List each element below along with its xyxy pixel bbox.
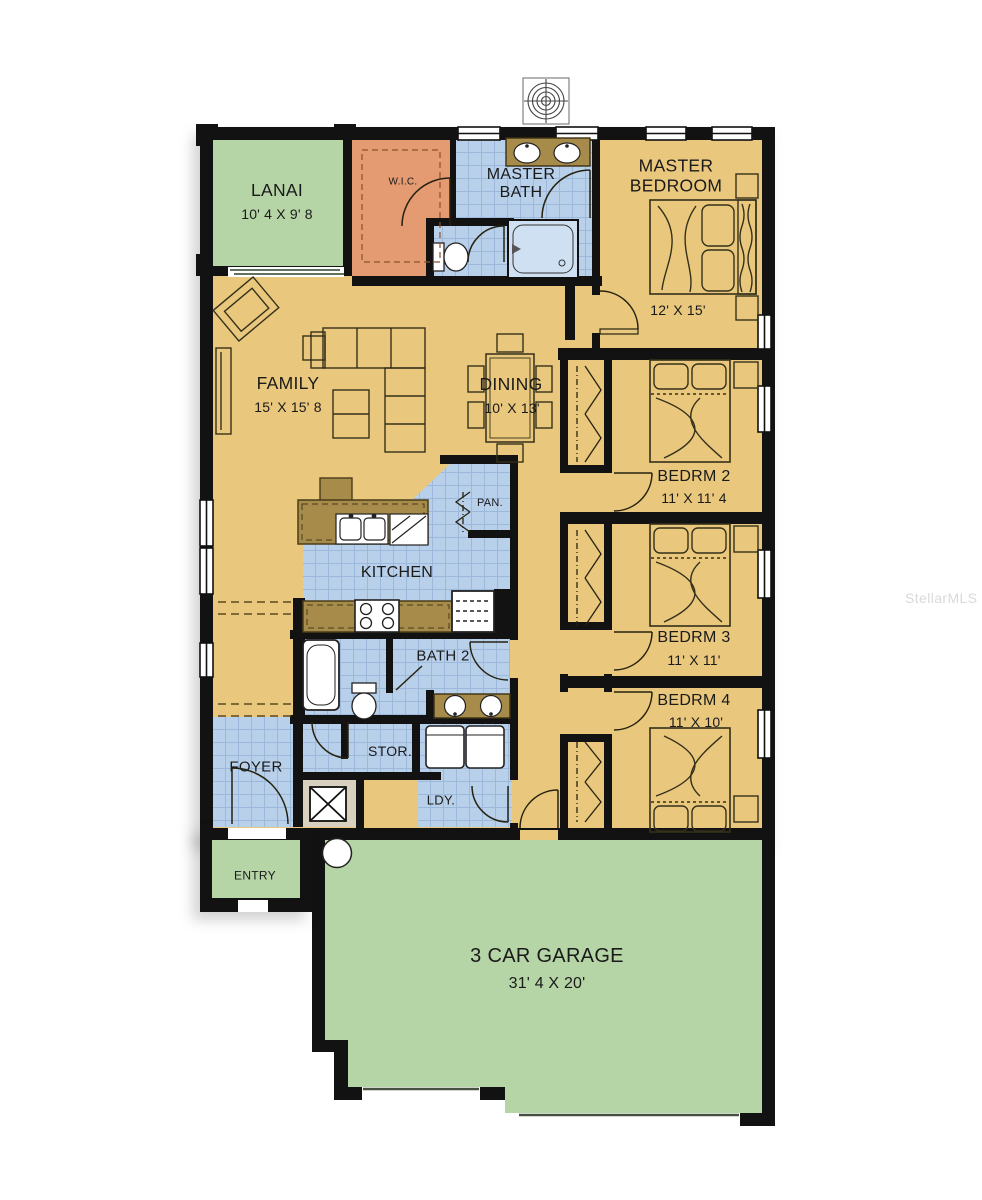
vanity-sinks-icon xyxy=(434,694,510,718)
sliding-door-icon xyxy=(228,267,344,277)
room-label-bedroom2: BEDRM 2 xyxy=(657,468,730,486)
room-label-foyer: FOYER xyxy=(229,760,282,777)
toilet-icon xyxy=(352,683,376,719)
room-dims-bedroom3: 11' X 11' xyxy=(667,653,720,669)
room-label-bedroom3: BEDRM 3 xyxy=(657,629,730,647)
hvac-unit-icon xyxy=(310,787,346,821)
room-label-entry: ENTRY xyxy=(234,869,276,882)
room-label-storage: STOR. xyxy=(368,744,412,760)
label-line: MASTER xyxy=(487,166,555,184)
label-line: BEDROOM xyxy=(630,176,723,196)
room-label-garage: 3 CAR GARAGE xyxy=(470,945,624,967)
range-icon xyxy=(355,600,399,632)
room-dims-family: 15' X 15' 8 xyxy=(254,400,321,416)
kitchen-sink-icon xyxy=(336,514,388,544)
room-label-master-bath: MASTER BATH xyxy=(487,166,555,202)
compass-icon xyxy=(523,78,569,124)
water-heater-icon xyxy=(323,839,352,868)
dining-table-icon xyxy=(468,334,552,462)
vanity-sinks-icon xyxy=(506,138,590,166)
garage-door-icon xyxy=(362,1087,740,1128)
room-dims-bedroom4: 11' X 10' xyxy=(669,715,723,731)
room-label-bath2: BATH 2 xyxy=(416,649,469,666)
room-label-dining: DINING xyxy=(479,375,542,395)
sofa-icon xyxy=(303,328,425,452)
armchair-icon xyxy=(213,277,279,341)
room-label-family: FAMILY xyxy=(257,374,320,394)
bathtub-icon xyxy=(303,640,339,710)
room-dims-dining: 10' X 13' xyxy=(484,401,539,417)
refrigerator-icon xyxy=(452,591,494,632)
room-dims-master-bedroom: 12' X 15' xyxy=(650,303,705,319)
master-bed-icon xyxy=(650,174,758,320)
bed-icon xyxy=(650,360,758,462)
room-dims-lanai: 10' 4 X 9' 8 xyxy=(241,207,313,223)
watermark: StellarMLS xyxy=(905,590,977,606)
label-line: MASTER xyxy=(630,156,723,176)
bed-icon xyxy=(650,524,758,626)
room-label-laundry: LDY. xyxy=(427,794,455,809)
toilet-icon xyxy=(433,243,468,271)
label-line: BATH xyxy=(487,184,555,202)
washer-dryer-icon xyxy=(426,726,504,768)
tv-unit-icon xyxy=(216,348,231,434)
room-dims-garage: 31' 4 X 20' xyxy=(509,975,586,993)
room-label-master-bedroom: MASTER BEDROOM xyxy=(630,156,723,195)
dishwasher-icon xyxy=(390,514,428,545)
room-dims-bedroom2: 11' X 11' 4 xyxy=(661,491,726,507)
room-label-bedroom4: BEDRM 4 xyxy=(657,692,730,710)
bed-icon xyxy=(650,728,758,832)
room-label-wic: W.I.C. xyxy=(388,176,417,187)
room-label-lanai: LANAI xyxy=(251,181,303,201)
bathtub-icon xyxy=(508,220,578,278)
room-label-pantry: PAN. xyxy=(477,497,503,509)
room-label-kitchen: KITCHEN xyxy=(361,564,433,582)
floor-plan: LANAI 10' 4 X 9' 8 W.I.C. MASTER BATH MA… xyxy=(0,0,982,1200)
